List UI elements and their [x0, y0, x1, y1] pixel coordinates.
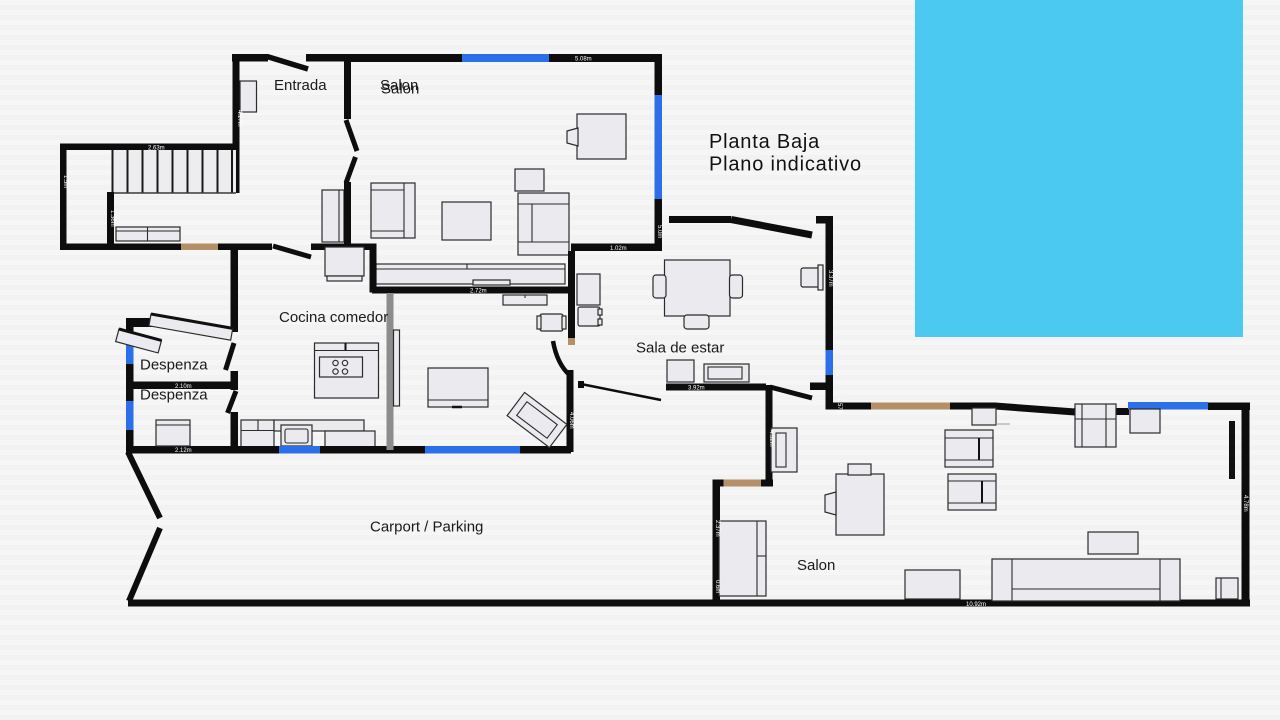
svg-text:4.06m: 4.06m [568, 412, 574, 429]
svg-text:4.17m: 4.17m [236, 110, 242, 127]
svg-text:Despenza: Despenza [140, 357, 208, 374]
svg-text:2.10m: 2.10m [175, 384, 192, 390]
svg-text:Salon: Salon [797, 557, 835, 574]
svg-text:2.37m: 2.37m [714, 520, 720, 537]
svg-text:10.92m: 10.92m [966, 602, 986, 608]
svg-text:1.02m: 1.02m [610, 246, 627, 252]
svg-text:Planta Baja: Planta Baja [709, 131, 820, 153]
svg-text:3.37m: 3.37m [827, 270, 833, 287]
svg-text:Salon: Salon [381, 81, 419, 98]
svg-text:4.78m: 4.78m [1242, 495, 1248, 512]
svg-text:2.63m: 2.63m [148, 146, 165, 152]
svg-text:5.0m: 5.0m [656, 225, 662, 238]
svg-text:4.32m: 4.32m [768, 430, 774, 447]
svg-text:1.36m: 1.36m [109, 210, 115, 227]
svg-text:3.92m: 3.92m [688, 386, 705, 392]
svg-text:2.12m: 2.12m [175, 448, 192, 454]
svg-text:1.5m: 1.5m [62, 175, 68, 188]
svg-text:Carport / Parking: Carport / Parking [370, 519, 483, 536]
svg-text:5.08m: 5.08m [575, 57, 592, 63]
svg-text:0.6m: 0.6m [714, 580, 720, 593]
svg-text:2.57m: 2.57m [836, 398, 842, 415]
svg-text:Entrada: Entrada [274, 77, 327, 94]
svg-text:2.72m: 2.72m [470, 289, 487, 295]
svg-text:Sala de estar: Sala de estar [636, 340, 724, 357]
svg-text:Plano indicativo: Plano indicativo [709, 154, 862, 176]
svg-text:Cocina comedor: Cocina comedor [279, 309, 388, 326]
